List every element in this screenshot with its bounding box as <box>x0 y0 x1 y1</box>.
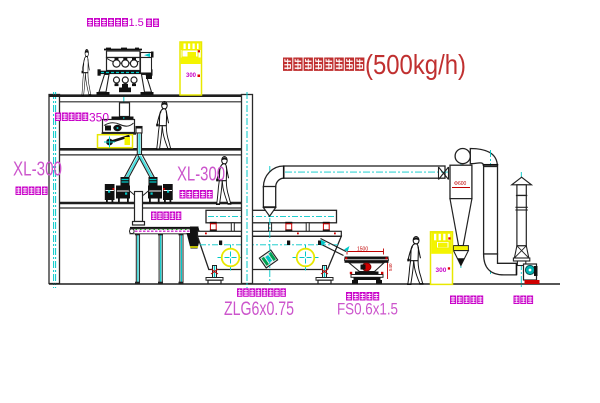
svg-text:FS0.6x1.5: FS0.6x1.5 <box>337 300 398 319</box>
svg-text:ZLG6x0.75: ZLG6x0.75 <box>224 299 294 320</box>
svg-text:XL-300: XL-300 <box>177 164 225 186</box>
svg-text:540: 540 <box>388 263 393 271</box>
svg-text:Φ600: Φ600 <box>454 181 467 187</box>
svg-text:350: 350 <box>89 111 109 125</box>
svg-text:XL-300: XL-300 <box>13 159 62 181</box>
svg-text:1500: 1500 <box>357 247 368 253</box>
svg-text:1.5: 1.5 <box>129 17 144 29</box>
svg-text:300: 300 <box>186 73 197 79</box>
svg-text:(500kg/h): (500kg/h) <box>365 49 466 80</box>
svg-text:300: 300 <box>436 267 447 274</box>
